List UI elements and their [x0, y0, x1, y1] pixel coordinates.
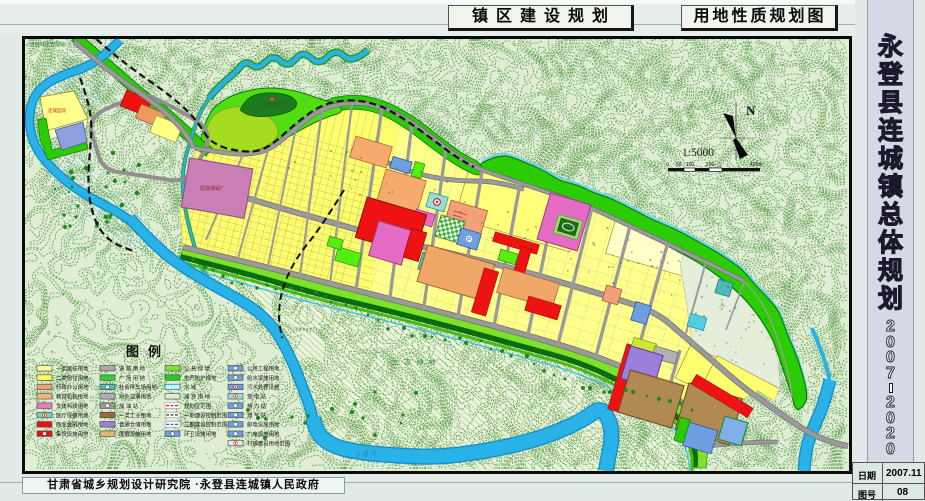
svg-text:水 域: 水 域 — [184, 383, 197, 391]
svg-text:商业金融用地: 商业金融用地 — [56, 421, 89, 429]
svg-text:滩 涂 用 地: 滩 涂 用 地 — [184, 393, 211, 401]
svg-text:普通仓储用地: 普通仓储用地 — [119, 421, 152, 429]
svg-text:规划区范围: 规划区范围 — [184, 402, 211, 410]
svg-text:二类居住用地: 二类居住用地 — [56, 374, 89, 382]
svg-text:公用工程用地: 公用工程用地 — [247, 365, 280, 373]
svg-text:村镇建设用地范围: 村镇建设用地范围 — [247, 439, 290, 447]
svg-text:行政办公用地: 行政办公用地 — [56, 383, 89, 391]
svg-text:二期建设控制范围: 二期建设控制范围 — [184, 421, 227, 429]
svg-text:50: 50 — [676, 162, 682, 168]
svg-text:P: P — [467, 238, 471, 244]
svg-text:原连城铝厂: 原连城铝厂 — [200, 185, 225, 192]
svg-text:图例: 图例 — [126, 344, 170, 359]
svg-text:200: 200 — [706, 162, 715, 168]
svg-text:公 共 绿 地: 公 共 绿 地 — [184, 365, 211, 373]
svg-text:社会停车场用地: 社会停车场用地 — [119, 383, 157, 391]
svg-text:广电设施用地: 广电设施用地 — [247, 430, 280, 438]
svg-text:广 场 用 地: 广 场 用 地 — [119, 374, 146, 382]
svg-text:变 电 站: 变 电 站 — [247, 393, 267, 401]
svg-text:连城林区管理站: 连城林区管理站 — [30, 41, 65, 48]
svg-text:教育机构用地: 教育机构用地 — [56, 393, 89, 401]
svg-text:集贸设施用地: 集贸设施用地 — [56, 430, 89, 438]
svg-text:文体科技用地: 文体科技用地 — [56, 402, 89, 410]
svg-text:生 态 绿 地: 生 态 绿 地 — [392, 357, 437, 366]
svg-text:给水设施用地: 给水设施用地 — [247, 374, 280, 382]
svg-text:400m: 400m — [750, 162, 763, 168]
svg-text:污水处理设施: 污水处理设施 — [247, 383, 280, 391]
svg-text:邮电设施用地: 邮电设施用地 — [247, 421, 280, 429]
svg-text:0: 0 — [666, 162, 669, 168]
svg-text:N: N — [746, 103, 756, 118]
svg-text:对外交通用地: 对外交通用地 — [119, 393, 152, 401]
svg-text:一类工业用地: 一类工业用地 — [119, 411, 152, 419]
svg-text:生产防护绿地: 生产防护绿地 — [184, 374, 217, 382]
svg-text:医疗保健用地: 医疗保健用地 — [56, 411, 89, 419]
svg-text:热 力 站: 热 力 站 — [247, 402, 267, 410]
svg-text:环卫设施用地: 环卫设施用地 — [184, 430, 217, 438]
svg-text:一期建设控制范围: 一期建设控制范围 — [184, 411, 227, 419]
svg-text:鲁土司衙门: 鲁土司衙门 — [262, 101, 287, 108]
svg-text:燃 气 站: 燃 气 站 — [247, 411, 267, 419]
svg-text:大 通 河: 大 通 河 — [355, 450, 376, 458]
svg-text:加 油 站: 加 油 站 — [119, 402, 139, 410]
svg-text:度假设施用地: 度假设施用地 — [119, 430, 152, 438]
svg-text:道 路 用 地: 道 路 用 地 — [119, 365, 146, 373]
svg-text:1:5000: 1:5000 — [682, 147, 714, 159]
svg-text:一类居住用地: 一类居住用地 — [56, 365, 89, 373]
svg-text:连城监狱: 连城监狱 — [48, 107, 66, 114]
svg-text:100: 100 — [686, 162, 695, 168]
